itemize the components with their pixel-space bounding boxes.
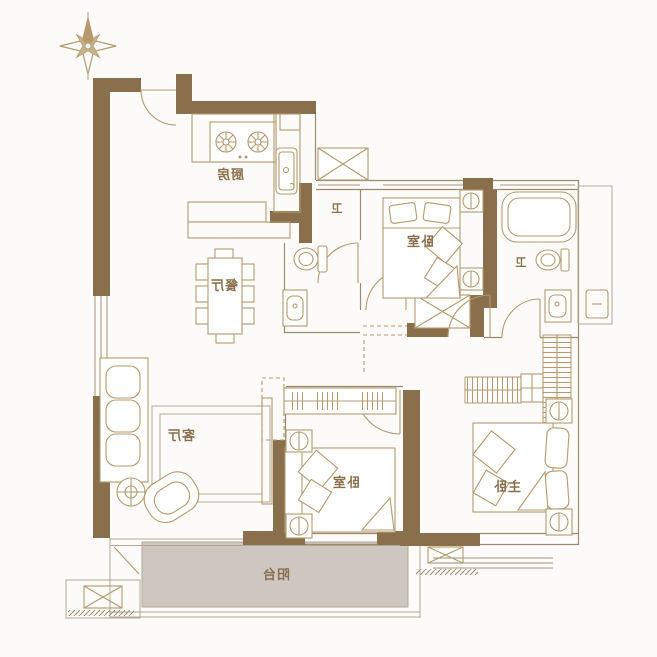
dining-table-icon — [196, 249, 254, 343]
room-bedroom-bottom: 卧室 — [284, 388, 396, 538]
room-label-kitchen: 厨房 — [216, 167, 244, 183]
room-bedroom-top: 卧室 — [383, 190, 483, 298]
room-label-bath-hall: 卫 — [332, 202, 343, 215]
room-dining: 餐厅 — [196, 249, 254, 343]
room-bath-master: 卫 — [502, 192, 576, 322]
toilet-icon — [294, 246, 327, 272]
room-label-master-bedroom: 主卧 — [493, 479, 521, 495]
compass-icon — [60, 12, 116, 80]
room-label-balcony: 阳台 — [262, 567, 290, 583]
room-label-bedroom-top: 卧室 — [406, 234, 434, 250]
sink-icon — [276, 148, 297, 194]
floor-plan: 厨房 餐厅 卫 — [0, 0, 657, 657]
plant-icon — [117, 478, 145, 506]
washbasin-icon — [545, 290, 571, 322]
toilet-icon — [536, 249, 569, 271]
room-label-bedroom-bottom: 卧室 — [332, 475, 360, 491]
exterior-shaft-left — [66, 580, 140, 618]
bed-icon — [473, 423, 569, 512]
room-label-bath-master: 卫 — [516, 256, 527, 269]
stove-icon — [210, 122, 276, 162]
sofa-icon — [100, 358, 148, 482]
exterior-shaft-bottom-right — [416, 547, 553, 575]
bathtub-icon — [502, 192, 576, 242]
opening-dashes — [262, 326, 407, 440]
room-master-bedroom: 主卧 — [465, 335, 572, 535]
room-living: 客厅 — [100, 358, 272, 529]
wardrobe-icon — [284, 388, 396, 414]
room-label-living: 客厅 — [167, 428, 195, 444]
washbasin-icon — [283, 290, 307, 326]
room-label-dining: 餐厅 — [210, 278, 239, 294]
